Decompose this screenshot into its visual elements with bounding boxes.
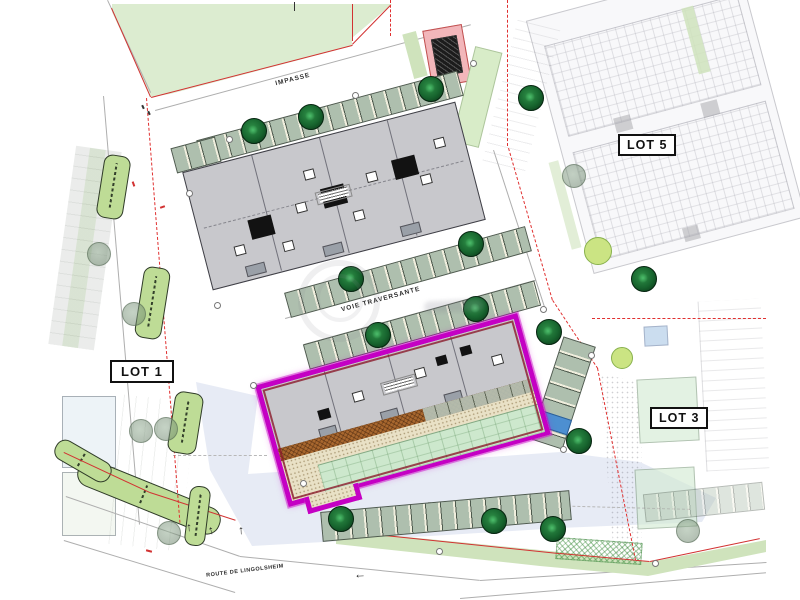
tree-icon — [458, 231, 484, 257]
stair-core — [317, 408, 331, 421]
parcel-dashed-line — [390, 0, 391, 36]
arrow-left-icon: ← — [354, 567, 366, 581]
tree-icon — [418, 76, 444, 102]
survey-point — [560, 446, 567, 453]
rooflight — [491, 354, 504, 367]
lot5-label: LOT 5 — [618, 134, 676, 156]
stair-core — [391, 155, 419, 180]
tree-faint-icon — [122, 302, 146, 326]
survey-point — [588, 352, 595, 359]
tree-icon — [631, 266, 657, 292]
road-centerline — [173, 455, 267, 456]
survey-point — [300, 480, 307, 487]
rooflight — [433, 137, 446, 149]
rooflight — [365, 171, 378, 183]
survey-point — [652, 560, 659, 567]
parcel-dashed-line — [507, 0, 508, 146]
lot3-parking-faint — [698, 298, 770, 471]
edge-tick — [294, 2, 295, 11]
site-plan-canvas: ↑ ↑ ↑ ← IMPASSE VOIE TRAVERSANTE ROUTE D… — [0, 0, 800, 600]
stair-core — [459, 345, 472, 357]
rooflight — [353, 209, 366, 221]
arrow-up-icon: ↑ — [186, 520, 193, 534]
stair-core — [435, 355, 448, 367]
rooflight — [420, 173, 433, 185]
tree-canopy-icon — [584, 237, 612, 265]
entrance-mat — [245, 262, 267, 278]
survey-point — [352, 92, 359, 99]
boundary-line — [352, 4, 353, 41]
tree-faint-icon — [129, 419, 153, 443]
survey-point — [436, 548, 443, 555]
tree-icon — [298, 104, 324, 130]
tree-icon — [540, 516, 566, 542]
tree-faint-icon — [676, 519, 700, 543]
parcel-dashed-line — [592, 318, 766, 319]
survey-point — [470, 60, 477, 67]
entrance-mat — [400, 222, 422, 238]
lot1-label: LOT 1 — [110, 360, 174, 383]
tree-icon — [536, 319, 562, 345]
survey-point — [540, 306, 547, 313]
survey-point — [226, 136, 233, 143]
tree-faint-icon — [157, 521, 181, 545]
tree-icon — [481, 508, 507, 534]
survey-point — [250, 382, 257, 389]
tree-faint-icon — [154, 417, 178, 441]
tree-icon — [566, 428, 592, 454]
tree-icon — [241, 118, 267, 144]
survey-point — [214, 302, 221, 309]
rooflight — [303, 168, 316, 180]
roof-division-line — [324, 371, 342, 431]
lot3-blue-roof — [643, 325, 668, 346]
rooflight — [295, 201, 308, 213]
arrow-up-icon: ↑ — [238, 523, 245, 537]
tree-canopy-icon — [611, 347, 633, 369]
entrance-mat — [322, 242, 344, 258]
lot3-label: LOT 3 — [650, 407, 708, 429]
survey-point — [186, 190, 193, 197]
tree-icon — [328, 506, 354, 532]
rooflight — [282, 240, 295, 252]
watermark — [316, 274, 364, 322]
tree-faint-icon — [87, 242, 111, 266]
tree-icon — [518, 85, 544, 111]
rooflight — [234, 244, 247, 256]
tree-faint-icon — [562, 164, 586, 188]
rooflight — [352, 390, 365, 403]
